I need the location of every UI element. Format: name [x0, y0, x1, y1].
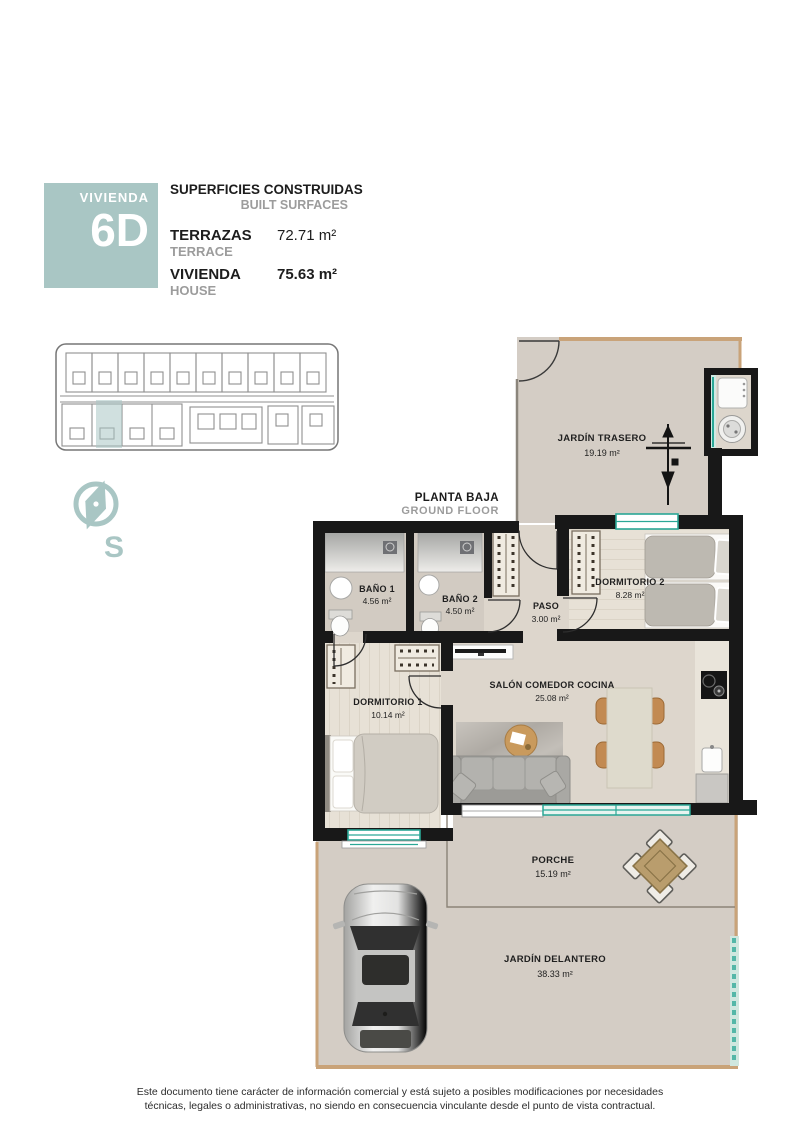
floor-sublabel: GROUND FLOOR [401, 505, 499, 517]
room-area: 4.56 m² [363, 596, 392, 606]
room-name: DORMITORIO 1 [353, 697, 422, 707]
single-bed-icon [645, 582, 735, 628]
legal-disclaimer: Este documento tiene carácter de informa… [0, 1086, 800, 1113]
room-area: 25.08 m² [535, 693, 569, 703]
room-area: 38.33 m² [537, 969, 573, 979]
utility-closet [704, 368, 758, 456]
coffee-table-icon [505, 725, 537, 757]
sink-icon [330, 577, 352, 599]
hedge-strip [730, 936, 739, 1066]
site-plan-top-row [66, 353, 326, 392]
room-name: SALÓN COMEDOR COCINA [490, 679, 615, 690]
window-living [462, 805, 543, 817]
floor-plan-page: VIVIENDA 6D SUPERFICIES CONSTRUIDAS BUIL… [0, 0, 800, 1132]
disclaimer-line-2: técnicas, legales o administrativas, no … [0, 1100, 800, 1114]
sliding-door-living [543, 805, 690, 815]
double-bed-icon [325, 734, 438, 813]
room-area: 15.19 m² [535, 869, 571, 879]
room-name: BAÑO 1 [359, 584, 395, 594]
front-garden: PORCHE 15.19 m² JARDÍN DELANTERO 38.33 m… [316, 815, 739, 1068]
wardrobe-icon [493, 531, 519, 596]
tv-unit-icon [447, 645, 513, 659]
dishwasher-icon [696, 774, 728, 803]
sofa-icon [447, 756, 570, 806]
room-name: PORCHE [532, 855, 574, 866]
sink-icon [419, 575, 439, 595]
hob-icon [701, 671, 727, 699]
car-icon [332, 884, 438, 1052]
washing-machine-icon [719, 416, 746, 443]
window-bedroom2 [616, 514, 678, 529]
window-bedroom1 [342, 830, 426, 848]
room-area: 19.19 m² [584, 448, 620, 458]
wardrobe-icon [327, 645, 355, 688]
disclaimer-line-1: Este documento tiene carácter de informa… [0, 1086, 800, 1100]
floor-label: PLANTA BAJA [415, 492, 499, 504]
room-name: BAÑO 2 [442, 594, 478, 604]
compass-south-label: S [104, 531, 124, 564]
room-name: DORMITORIO 2 [595, 577, 664, 587]
compass: S [76, 477, 124, 564]
water-heater-icon [718, 378, 747, 408]
room-area: 10.14 m² [371, 710, 405, 720]
site-plan-map [56, 344, 338, 450]
floor-plan-drawing: S PLANTA BAJA GROUND FLOOR [0, 0, 800, 1132]
single-bed-icon [645, 534, 735, 580]
site-plan-highlight [96, 400, 122, 448]
room-area: 8.28 m² [616, 590, 645, 600]
room-name: JARDÍN DELANTERO [504, 954, 606, 965]
wardrobe-icon [395, 645, 439, 671]
room-name: PASO [533, 601, 559, 611]
room-area: 4.50 m² [446, 606, 475, 616]
room-area: 3.00 m² [532, 614, 561, 624]
room-name: JARDÍN TRASERO [558, 433, 647, 444]
kitchen-sink-icon [702, 745, 722, 772]
